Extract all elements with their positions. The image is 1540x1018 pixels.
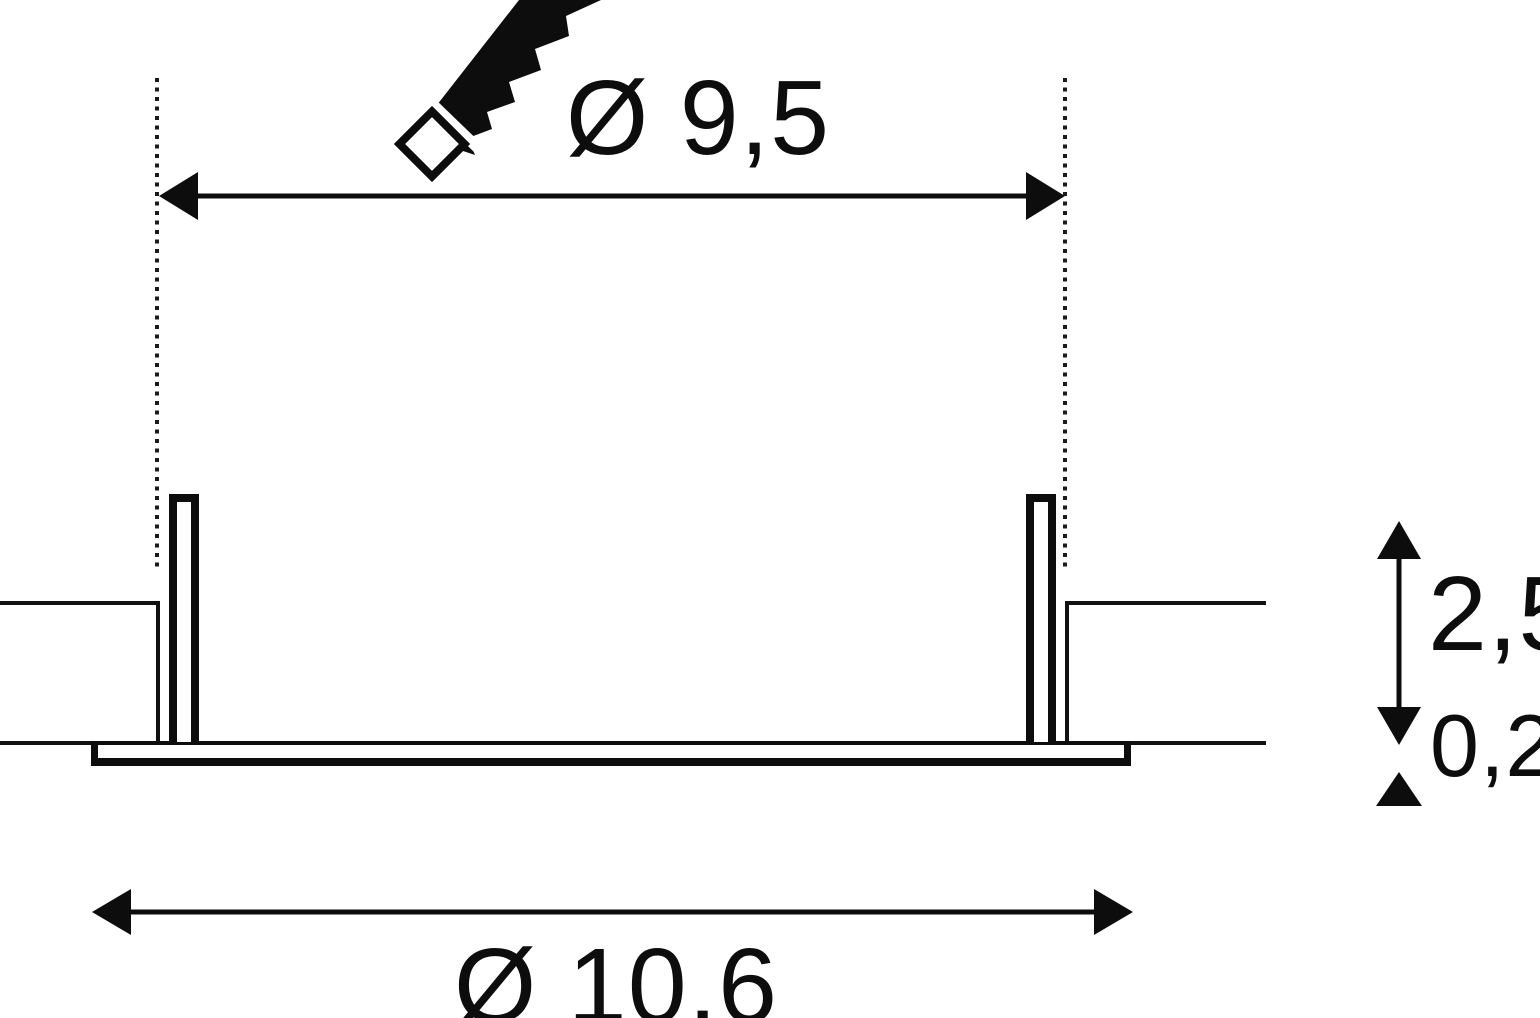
ceiling-section-right: [1066, 601, 1266, 745]
recess-depth-label: 2,5: [1428, 555, 1540, 673]
flange-thickness-label: 0,2: [1430, 696, 1540, 795]
arrowhead-up-icon: [1377, 521, 1421, 559]
arrowhead-left-icon: [159, 172, 198, 220]
clip-face: [1034, 502, 1048, 742]
cutout-diameter-label: Ø 9,5: [566, 59, 830, 177]
arrowhead-up-icon: [1376, 772, 1422, 806]
arrowhead-right-icon: [1026, 172, 1065, 220]
arrowhead-left-icon: [92, 889, 131, 935]
luminaire-flange: [91, 741, 1131, 766]
arrowhead-down-icon: [1377, 707, 1421, 745]
dimension-cutout-diameter: Ø 9,5: [159, 59, 1065, 220]
dimension-drawing: Ø 9,5: [0, 0, 1540, 1018]
spring-clip-left: [169, 494, 199, 744]
ceiling-section-left: [0, 601, 160, 745]
arrowhead-right-icon: [1094, 889, 1133, 935]
dimension-flange-diameter: Ø 10,6: [92, 889, 1133, 1018]
flange-diameter-label: Ø 10,6: [454, 927, 778, 1018]
flange-face: [98, 745, 1124, 758]
luminaire-cross-section-diagram: Ø 9,5: [0, 0, 1540, 1018]
clip-face: [177, 502, 191, 742]
spring-clip-right: [1026, 494, 1056, 744]
